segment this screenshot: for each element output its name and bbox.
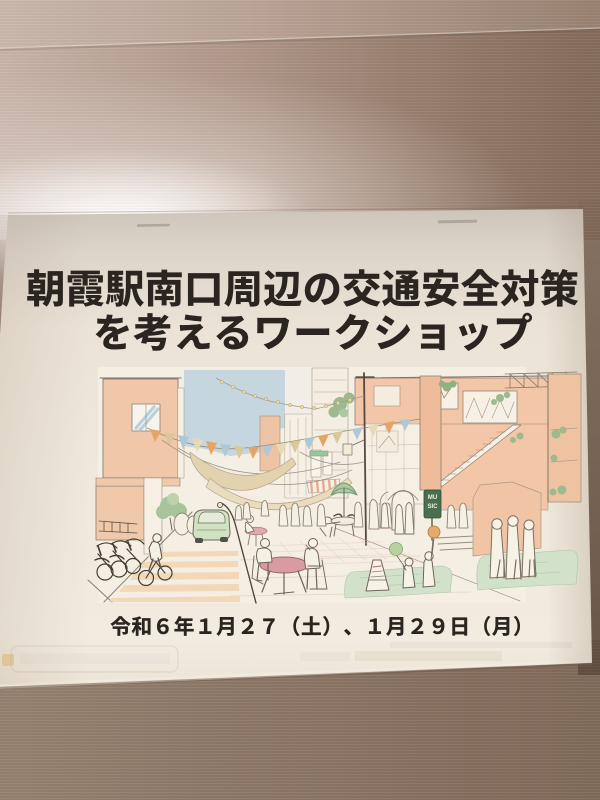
svg-text:SIC: SIC xyxy=(427,504,438,510)
svg-text:MU: MU xyxy=(428,495,437,501)
